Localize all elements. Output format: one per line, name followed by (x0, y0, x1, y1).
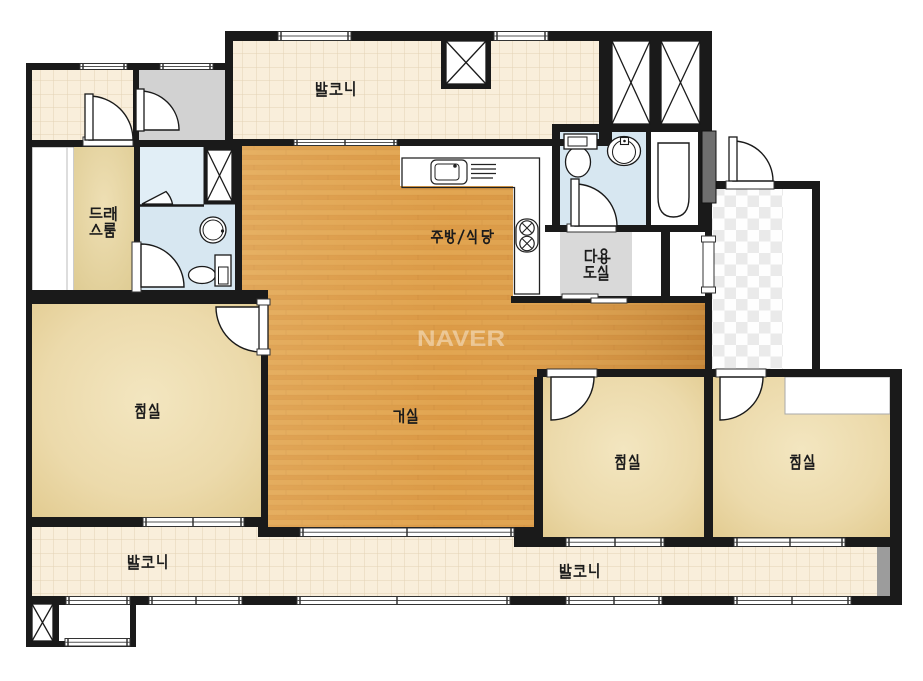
svg-text:NAVER: NAVER (417, 326, 505, 351)
